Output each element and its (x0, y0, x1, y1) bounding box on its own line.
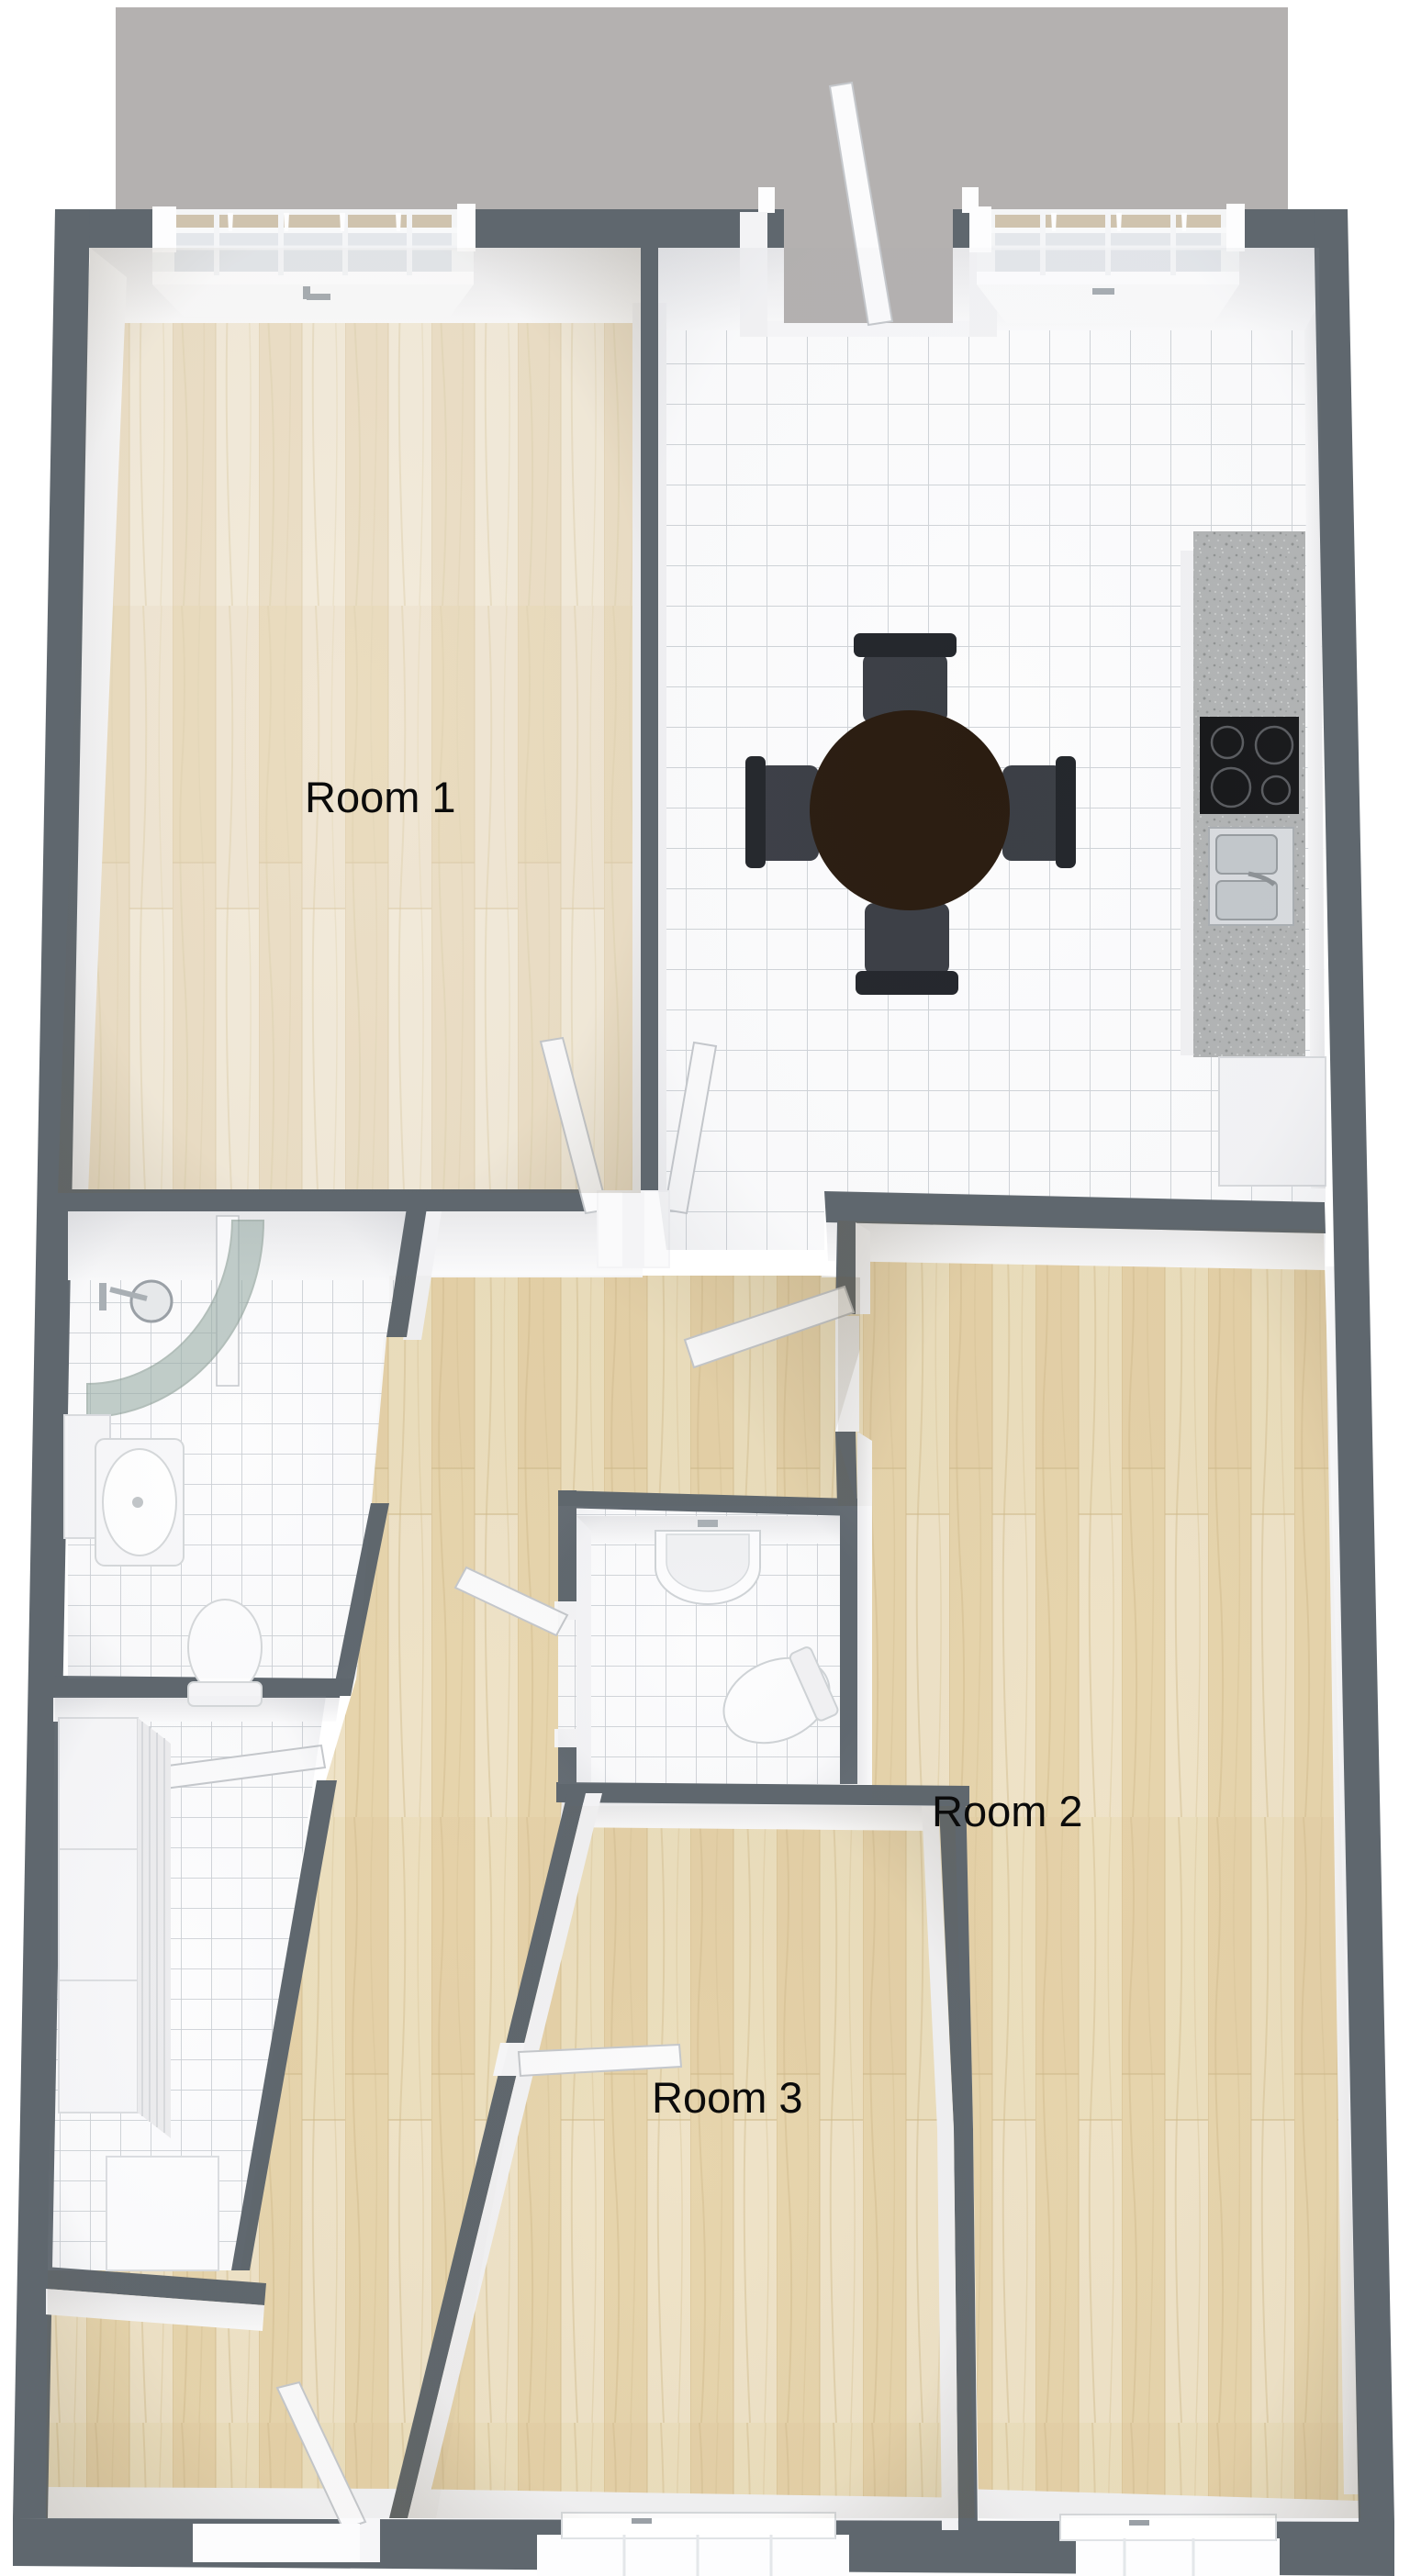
svg-text:Room 1: Room 1 (305, 773, 456, 821)
svg-text:Room 2: Room 2 (932, 1787, 1083, 1835)
svg-text:Room 3: Room 3 (652, 2073, 803, 2122)
